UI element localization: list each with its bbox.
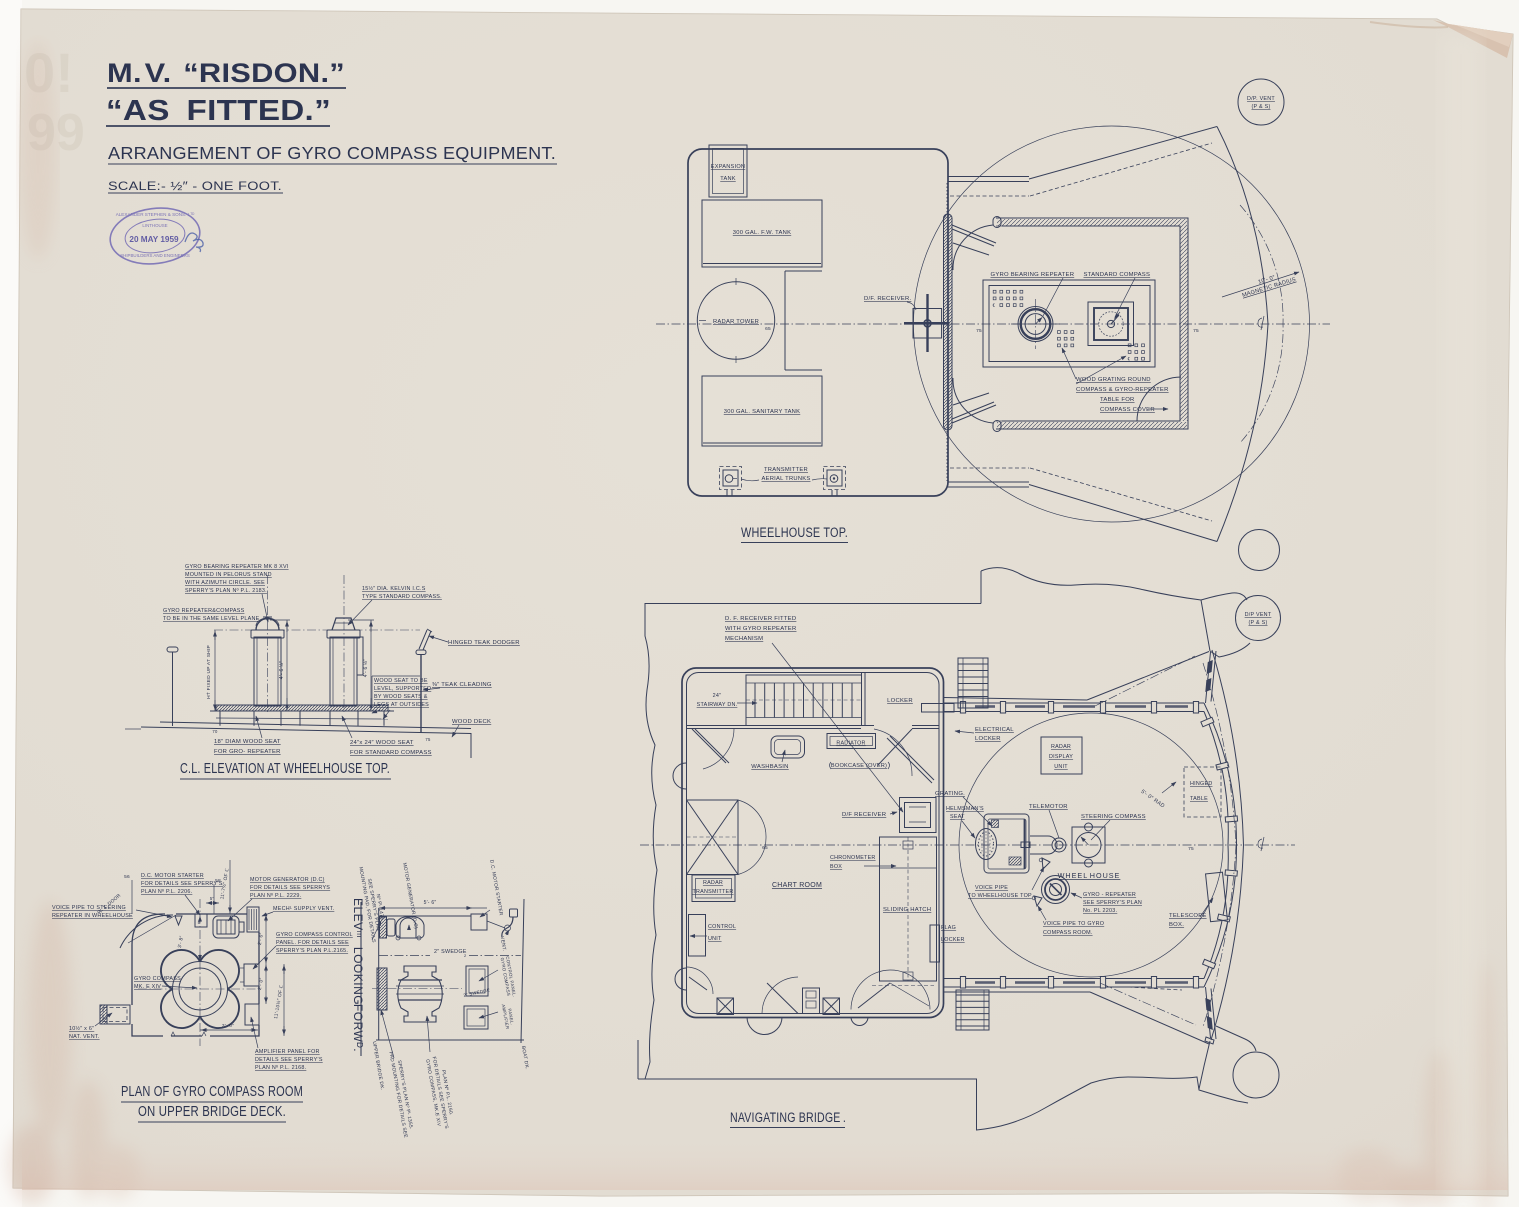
svg-text:WITH AZIMUTH CIRCLE. SEE: WITH AZIMUTH CIRCLE. SEE xyxy=(185,580,265,586)
svg-text:BY WOOD SEATS &: BY WOOD SEATS & xyxy=(374,694,428,700)
svg-text:ON UPPER BRIDGE DECK.: ON UPPER BRIDGE DECK. xyxy=(138,1103,286,1120)
svg-text:10½″ x 6″: 10½″ x 6″ xyxy=(69,1025,94,1032)
svg-text:HELMSMAN’S: HELMSMAN’S xyxy=(946,806,984,812)
svg-text:FOR STANDARD COMPASS: FOR STANDARD COMPASS xyxy=(350,750,432,756)
svg-text:MECHANISM: MECHANISM xyxy=(725,636,763,642)
svg-text:75: 75 xyxy=(425,737,431,742)
svg-text:NAT. VENT.: NAT. VENT. xyxy=(69,1034,100,1040)
svg-text:FOR DETAILS SEE SPERRYS: FOR DETAILS SEE SPERRYS xyxy=(250,885,330,891)
svg-text:FLAG: FLAG xyxy=(941,925,956,931)
svg-text:SCALE:- ½″ - ONE FOOT.: SCALE:- ½″ - ONE FOOT. xyxy=(108,181,282,193)
svg-text:VOICE PIPE TO GYRO: VOICE PIPE TO GYRO xyxy=(1043,921,1104,927)
svg-text:GYRO - REPEATER: GYRO - REPEATER xyxy=(1083,892,1136,898)
svg-text:RADAR: RADAR xyxy=(1051,744,1071,750)
svg-text:WASHBASIN: WASHBASIN xyxy=(751,764,788,770)
svg-text:3′- 0″: 3′- 0″ xyxy=(222,1023,234,1029)
svg-text:D/F. RECEIVER.: D/F. RECEIVER. xyxy=(864,296,911,302)
svg-text:2″ SWEDGE: 2″ SWEDGE xyxy=(434,949,467,955)
svg-text:65: 65 xyxy=(765,326,771,332)
svg-text:MECHᴸ SUPPLY VENT.: MECHᴸ SUPPLY VENT. xyxy=(273,906,334,912)
svg-text:FORWᴰ.: FORWᴰ. xyxy=(351,1004,365,1052)
svg-text:LINTHOUSE: LINTHOUSE xyxy=(142,223,167,228)
svg-text:D/P. VENT: D/P. VENT xyxy=(1247,96,1275,102)
svg-text:TABLE: TABLE xyxy=(1190,796,1208,802)
svg-text:DETAILS SEE SPERRY’S: DETAILS SEE SPERRY’S xyxy=(255,1057,323,1063)
svg-text:ALEXANDER STEPHEN & SONS. Lᵀᴰ: ALEXANDER STEPHEN & SONS. Lᵀᴰ xyxy=(116,212,195,217)
svg-text:GYRO BEARING REPEATER MK 8 XV: GYRO BEARING REPEATER MK 8 XVI xyxy=(185,564,289,570)
svg-text:VOICE PIPE TO STEERING: VOICE PIPE TO STEERING xyxy=(52,905,126,911)
svg-text:NAVIGATING BRIDGE .: NAVIGATING BRIDGE . xyxy=(730,1110,846,1125)
svg-text:RADAR: RADAR xyxy=(703,880,723,886)
svg-text:WOOD DECK: WOOD DECK xyxy=(452,719,491,725)
svg-text:SHIPBUILDERS AND ENGINEERS: SHIPBUILDERS AND ENGINEERS xyxy=(120,253,190,258)
svg-text:SPERRY’S PLAN P.L.2165.: SPERRY’S PLAN P.L.2165. xyxy=(276,948,348,954)
svg-text:TANK: TANK xyxy=(720,176,736,182)
svg-text:75: 75 xyxy=(1188,846,1194,852)
svg-text:GYRO BEARING REPEATER: GYRO BEARING REPEATER xyxy=(991,272,1075,278)
svg-text:BOX: BOX xyxy=(830,864,842,870)
svg-text:CONTROL: CONTROL xyxy=(708,924,736,930)
svg-text:GYRO REPEATER&COMPASS: GYRO REPEATER&COMPASS xyxy=(163,608,245,614)
svg-text:99: 99 xyxy=(27,104,85,162)
svg-text:5″: 5″ xyxy=(210,896,215,901)
svg-text:SPERRY’S PLAN Nº P.L. 2183.: SPERRY’S PLAN Nº P.L. 2183. xyxy=(185,588,267,594)
svg-text:24″x 24″ WOOD SEAT: 24″x 24″ WOOD SEAT xyxy=(350,740,414,746)
svg-text:ELEVᵐ: ELEVᵐ xyxy=(351,898,365,938)
svg-text:ELECTRICAL: ELECTRICAL xyxy=(975,727,1014,733)
svg-text:300 GAL. F.W. TANK: 300 GAL. F.W. TANK xyxy=(733,230,791,236)
svg-text:CHRONOMETER: CHRONOMETER xyxy=(830,855,876,861)
svg-text:D.C. MOTOR STARTER: D.C. MOTOR STARTER xyxy=(141,873,204,879)
svg-text:SEAT: SEAT xyxy=(950,814,965,820)
svg-text:VOICE PIPE: VOICE PIPE xyxy=(975,885,1008,891)
svg-text:UNIT: UNIT xyxy=(708,936,722,942)
svg-text:MK. E XIV: MK. E XIV xyxy=(134,984,161,990)
svg-text:TELEMOTOR: TELEMOTOR xyxy=(1029,804,1068,810)
svg-text:TABLE FOR: TABLE FOR xyxy=(1100,397,1135,403)
svg-text:REPEATER IN WHEELHOUSE: REPEATER IN WHEELHOUSE xyxy=(52,913,133,919)
svg-text:COMPASS & GYRO-REPEATER: COMPASS & GYRO-REPEATER xyxy=(1076,387,1169,393)
svg-text:PLAN OF GYRO COMPASS ROOM: PLAN OF GYRO COMPASS ROOM xyxy=(121,1083,303,1100)
svg-text:WOOD SEAT TO BE: WOOD SEAT TO BE xyxy=(374,678,428,684)
svg-text:GYRO COMPASS: GYRO COMPASS xyxy=(134,976,181,982)
svg-text:(P & S): (P & S) xyxy=(1248,620,1267,626)
svg-text:EXPANSION: EXPANSION xyxy=(711,164,745,170)
svg-text:D/P VENT: D/P VENT xyxy=(1245,612,1272,618)
svg-text:STEERING COMPASS: STEERING COMPASS xyxy=(1081,814,1146,820)
svg-text:COMPASS COVER: COMPASS COVER xyxy=(1100,407,1155,413)
svg-text:C.L. ELEVATION AT WHEELHOUSE T: C.L. ELEVATION AT WHEELHOUSE TOP. xyxy=(180,760,390,777)
svg-text:PLAN Nº P.L. 2168.: PLAN Nº P.L. 2168. xyxy=(255,1065,306,1071)
svg-text:(P & S): (P & S) xyxy=(1251,104,1270,110)
svg-text:LOCKER: LOCKER xyxy=(887,698,913,704)
svg-text:LEGS AT OUTSIDES: LEGS AT OUTSIDES xyxy=(374,702,429,708)
svg-text:300 GAL. SANITARY TANK: 300 GAL. SANITARY TANK xyxy=(724,409,801,415)
svg-text:DISPLAY: DISPLAY xyxy=(1049,754,1073,760)
svg-text:75: 75 xyxy=(976,328,982,334)
svg-text:PANEL. FOR DETAILS SEE: PANEL. FOR DETAILS SEE xyxy=(276,940,349,946)
svg-text:No. PL 2203.: No. PL 2203. xyxy=(1083,908,1117,914)
svg-text:AMPLIFIER PANEL FOR: AMPLIFIER PANEL FOR xyxy=(255,1049,320,1055)
svg-text:56: 56 xyxy=(124,874,130,880)
svg-text:75: 75 xyxy=(1193,328,1199,334)
svg-text:TRANSMITTER: TRANSMITTER xyxy=(692,889,733,895)
svg-text:18″ DIAM WOOD SEAT: 18″ DIAM WOOD SEAT xyxy=(214,739,281,745)
svg-text:WITH GYRO REPEATER: WITH GYRO REPEATER xyxy=(725,626,796,632)
svg-text:4′- 6 ⅛″: 4′- 6 ⅛″ xyxy=(279,661,285,680)
svg-text:TO BE IN THE SAME LEVEL PLANE: TO BE IN THE SAME LEVEL PLANE xyxy=(163,616,260,622)
svg-text:70: 70 xyxy=(212,729,218,734)
svg-text:FOR GRO- REPEATER: FOR GRO- REPEATER xyxy=(214,749,281,755)
svg-text:⅜″ TEAK CLEADING: ⅜″ TEAK CLEADING xyxy=(432,682,492,688)
svg-text:STANDARD COMPASS: STANDARD COMPASS xyxy=(1084,272,1151,278)
svg-text:PLAN Nº P.L. 2229.: PLAN Nº P.L. 2229. xyxy=(250,893,301,899)
svg-text:STAIRWAY DN.: STAIRWAY DN. xyxy=(697,702,738,708)
svg-text:WHEEL HOUSE: WHEEL HOUSE xyxy=(1058,871,1121,880)
svg-text:RADAR TOWER: RADAR TOWER xyxy=(713,319,759,325)
svg-text:MOTOR GENERATOR (D.C): MOTOR GENERATOR (D.C) xyxy=(250,877,325,883)
svg-text:PLAN Nº P.L. 2206.: PLAN Nº P.L. 2206. xyxy=(141,889,192,895)
svg-text:BOX.: BOX. xyxy=(1169,922,1184,928)
svg-text:LOCKER: LOCKER xyxy=(975,736,1001,742)
svg-text:BOOKCASE (OVER): BOOKCASE (OVER) xyxy=(831,763,887,769)
svg-text:LEVEL, SUPPORTED: LEVEL, SUPPORTED xyxy=(374,686,431,692)
svg-text:LOCKER: LOCKER xyxy=(941,937,965,943)
svg-text:HINGED TEAK DODGER: HINGED TEAK DODGER xyxy=(448,640,520,646)
svg-text:CHART ROOM: CHART ROOM xyxy=(772,882,822,889)
svg-text:4′- 6 ⅛″: 4′- 6 ⅛″ xyxy=(363,659,369,678)
svg-text:24″: 24″ xyxy=(713,693,722,699)
svg-text:ARRANGEMENT OF GYRO COMPASS EQ: ARRANGEMENT OF GYRO COMPASS EQUIPMENT. xyxy=(108,143,556,163)
svg-text:GYRO COMPASS CONTROL: GYRO COMPASS CONTROL xyxy=(276,932,353,938)
svg-text:HINGED: HINGED xyxy=(1190,781,1212,787)
svg-text:WHEELHOUSE TOP.: WHEELHOUSE TOP. xyxy=(741,525,848,540)
svg-text:TRANSMITTER: TRANSMITTER xyxy=(764,467,808,473)
svg-text:COMPASS ROOM.: COMPASS ROOM. xyxy=(1043,930,1093,936)
svg-text:HṪ FIXED UP AT SHIP: HṪ FIXED UP AT SHIP xyxy=(205,645,212,699)
svg-text:RADIATOR: RADIATOR xyxy=(836,741,865,747)
svg-text:SLIDING HATCH: SLIDING HATCH xyxy=(883,907,931,913)
svg-text:5′- 6″: 5′- 6″ xyxy=(424,900,437,906)
svg-text:FOR DETAILS SEE SPERRY’S: FOR DETAILS SEE SPERRY’S xyxy=(141,881,223,887)
svg-text:MOUNTED IN PELORUS STAND: MOUNTED IN PELORUS STAND xyxy=(185,572,272,578)
svg-text:20 MAY 1959: 20 MAY 1959 xyxy=(129,235,179,244)
svg-text:M. V. “RISDON.”: M. V. “RISDON.” xyxy=(107,58,345,88)
svg-text:TO WHEELHOUSE TOP: TO WHEELHOUSE TOP xyxy=(968,893,1032,899)
svg-text:0!: 0! xyxy=(24,41,74,104)
svg-text:SEE SPERRY’S PLAN: SEE SPERRY’S PLAN xyxy=(1083,900,1142,906)
svg-text:“AS FITTED.”: “AS FITTED.” xyxy=(106,95,331,127)
svg-text:GRATING.: GRATING. xyxy=(935,791,965,797)
svg-text:TYPE STANDARD COMPASS.: TYPE STANDARD COMPASS. xyxy=(362,594,442,600)
svg-text:15½″ DIA. KELVIN I.C.S: 15½″ DIA. KELVIN I.C.S xyxy=(362,585,426,592)
svg-text:D/F RECEIVER: D/F RECEIVER xyxy=(842,812,886,818)
svg-text:LOOKING: LOOKING xyxy=(351,947,365,1005)
svg-text:65: 65 xyxy=(762,845,768,851)
svg-text:UNIT: UNIT xyxy=(1054,764,1068,770)
svg-text:AERIAL TRUNKS: AERIAL TRUNKS xyxy=(762,476,811,482)
svg-text:D. F. RECEIVER FITTED: D. F. RECEIVER FITTED xyxy=(725,616,796,622)
